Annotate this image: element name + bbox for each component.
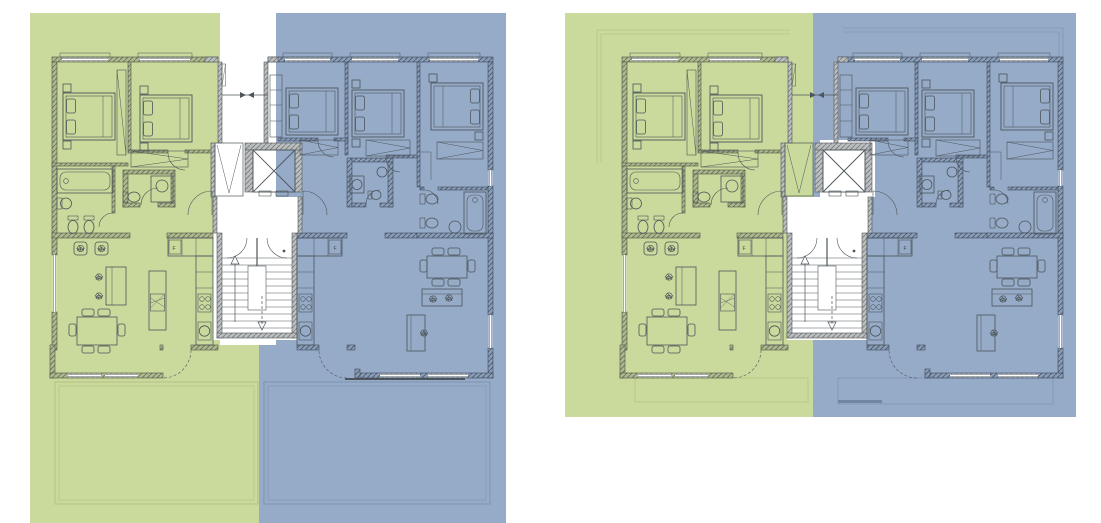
panel-plan-right — [565, 13, 1076, 417]
unit-a-overlay[interactable] — [565, 13, 813, 417]
floorplans-svg: F F — [0, 0, 1101, 523]
floorplan-canvas: F F — [0, 0, 1101, 523]
panel-plan-left — [30, 13, 506, 523]
